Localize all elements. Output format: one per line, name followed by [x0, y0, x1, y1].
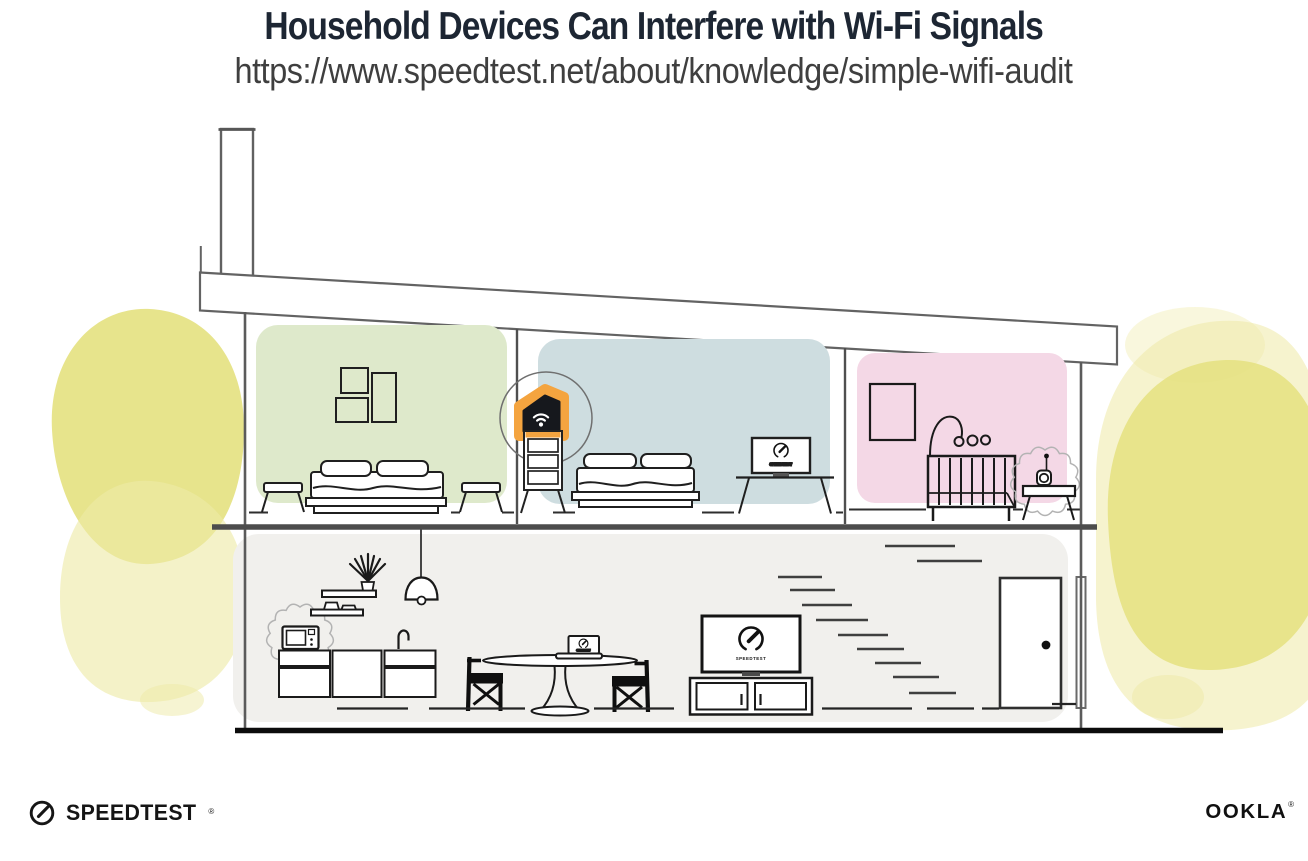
plant-pot — [362, 582, 375, 591]
front-door — [1000, 578, 1061, 708]
tv-console — [690, 678, 812, 715]
bedroom-tv-label: SPEEDTEST — [770, 463, 793, 467]
speedtest-wordmark: SPEEDTEST — [66, 800, 196, 826]
house-illustration: SPEEDTEST — [0, 0, 1308, 861]
laptop-screen-label: SPEEDTEST — [577, 650, 591, 652]
ookla-trademark: ® — [1288, 800, 1294, 809]
bowl — [342, 606, 357, 610]
bowl — [324, 603, 339, 610]
bed — [306, 461, 446, 513]
infographic-page: Household Devices Can Interfere with Wi-… — [0, 0, 1308, 861]
speedtest-logo: SPEEDTEST ® — [26, 797, 214, 829]
speedtest-gauge-icon — [26, 797, 58, 829]
living-tv-label: SPEEDTEST — [736, 656, 767, 661]
door-knob — [1042, 641, 1051, 650]
tree-right — [1096, 307, 1308, 730]
ookla-logo: OOKLA ® — [1207, 801, 1293, 824]
ookla-wordmark: OOKLA — [1205, 801, 1287, 824]
tree-left — [52, 309, 246, 716]
bed — [572, 454, 699, 507]
microwave — [283, 627, 319, 650]
tv-stand — [742, 672, 760, 676]
living-tv: SPEEDTEST — [702, 616, 800, 676]
chimney — [219, 129, 256, 279]
speedtest-trademark: ® — [208, 807, 214, 816]
